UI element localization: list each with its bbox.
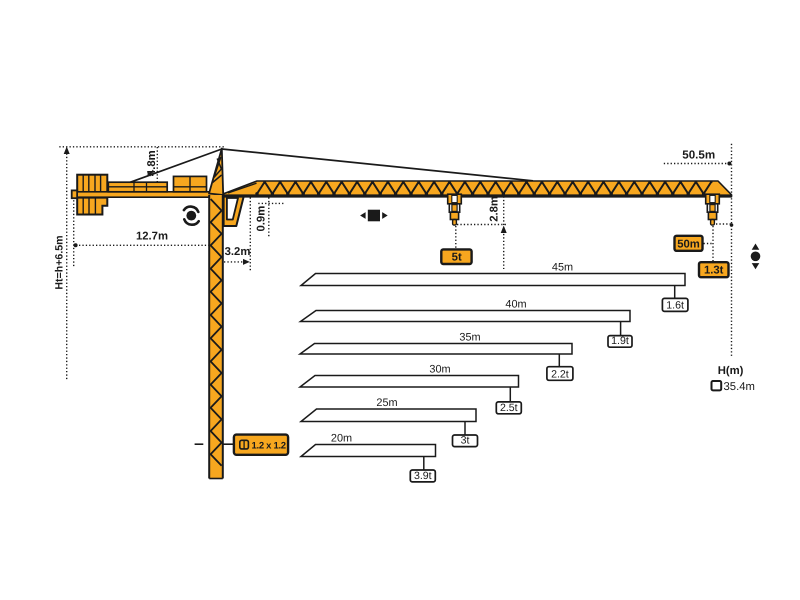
svg-text:5t: 5t: [452, 252, 462, 264]
svg-text:2.2t: 2.2t: [551, 368, 569, 380]
svg-text:2.8m: 2.8m: [489, 196, 501, 222]
svg-text:45m: 45m: [552, 261, 573, 273]
svg-text:1.2 x 1.2: 1.2 x 1.2: [252, 441, 286, 452]
svg-text:30m: 30m: [429, 363, 450, 375]
svg-text:0.9m: 0.9m: [255, 206, 267, 232]
svg-text:12.7m: 12.7m: [136, 231, 168, 243]
svg-text:3.9t: 3.9t: [414, 470, 432, 482]
svg-text:1.9t: 1.9t: [611, 335, 629, 347]
svg-text:2.5t: 2.5t: [500, 402, 518, 414]
svg-text:Ht=h+6.5m: Ht=h+6.5m: [53, 235, 65, 289]
svg-text:25m: 25m: [376, 397, 397, 409]
svg-text:3t: 3t: [461, 435, 470, 447]
svg-text:3.2m: 3.2m: [225, 246, 251, 258]
svg-text:50m: 50m: [677, 238, 700, 250]
svg-text:1.6t: 1.6t: [666, 299, 684, 311]
svg-text:1.3t: 1.3t: [704, 265, 724, 277]
svg-text:50.5m: 50.5m: [682, 149, 715, 162]
svg-text:35.4m: 35.4m: [724, 381, 755, 393]
svg-text:20m: 20m: [331, 432, 352, 444]
svg-text:H(m): H(m): [718, 365, 744, 377]
svg-text:40m: 40m: [505, 298, 526, 310]
svg-text:35m: 35m: [459, 331, 480, 343]
